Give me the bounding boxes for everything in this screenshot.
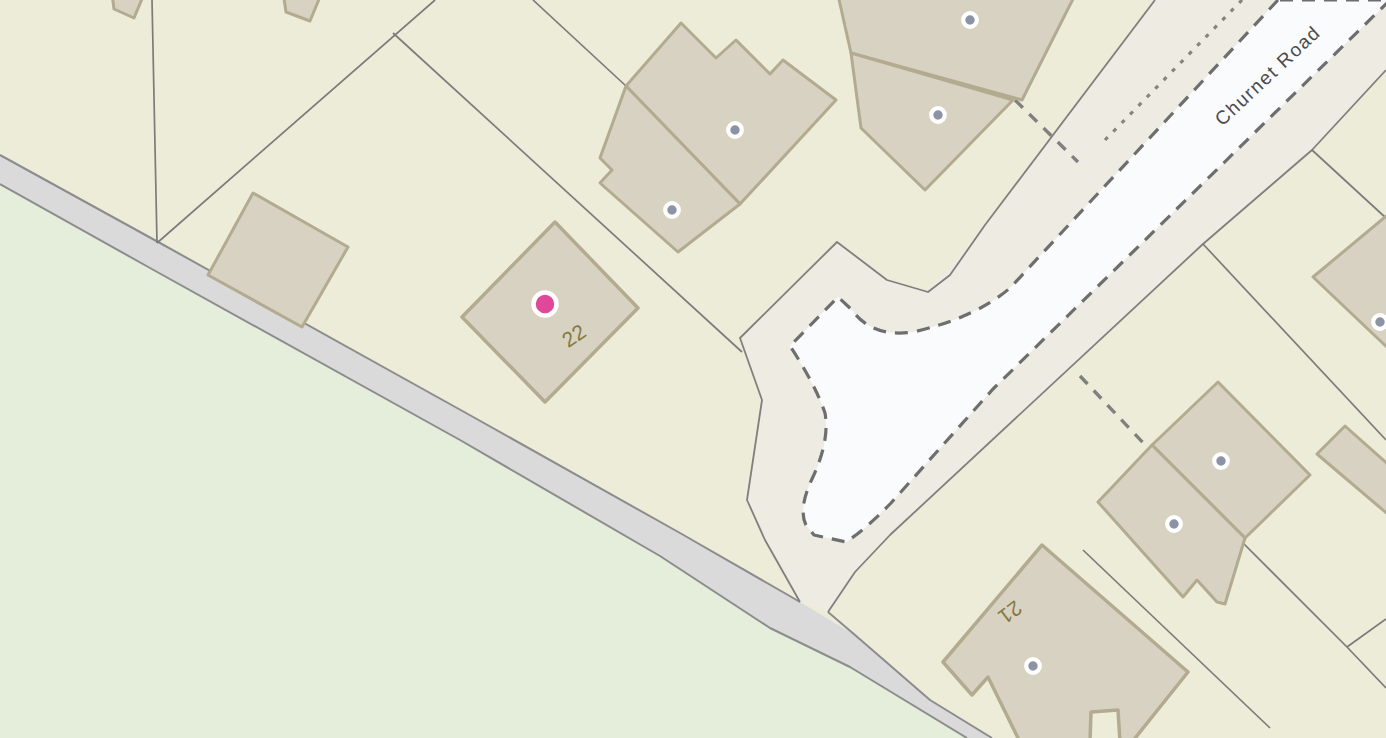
building-poi-dot [1214, 454, 1228, 468]
building-poi-dot [1026, 659, 1040, 673]
building-poi-dot [931, 108, 945, 122]
map-canvas[interactable] [0, 0, 1386, 738]
building-poi-dot [728, 123, 742, 137]
building-poi-dot [963, 13, 977, 27]
selected-property-marker[interactable] [534, 293, 557, 316]
building-poi-dot [665, 203, 679, 217]
map-viewport[interactable]: 22 21 Churnet Road [0, 0, 1386, 738]
building-poi-dot [1373, 315, 1386, 329]
building-poi-dot [1167, 517, 1181, 531]
